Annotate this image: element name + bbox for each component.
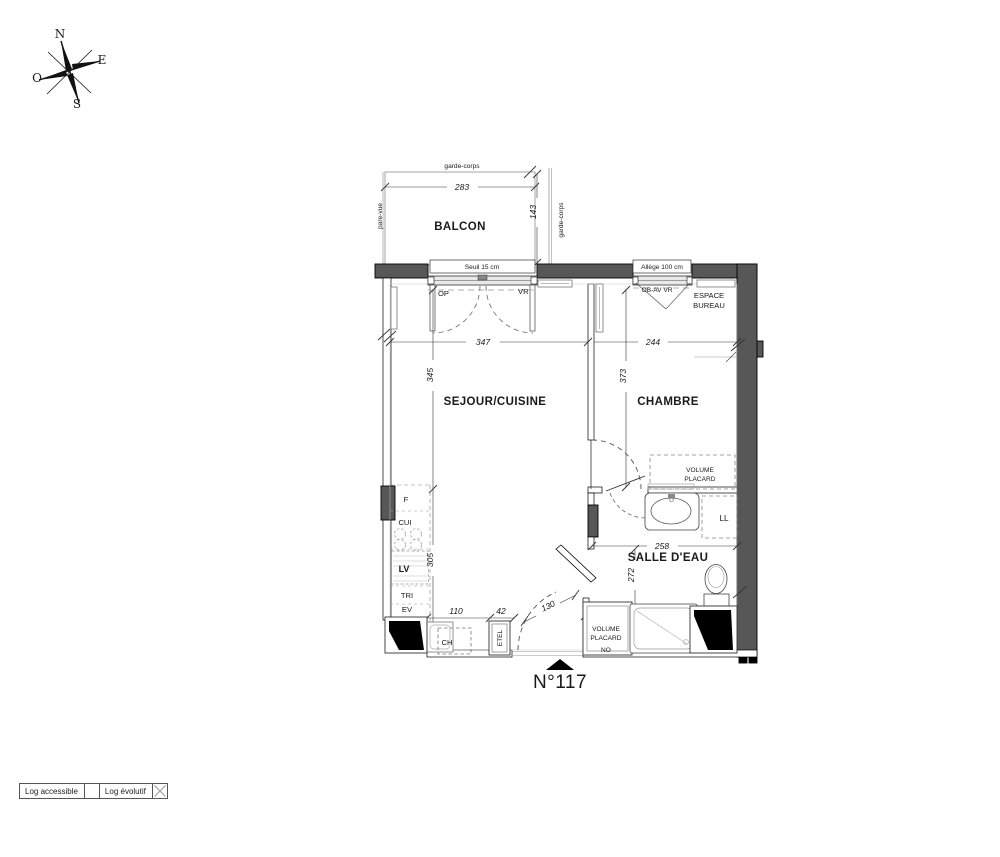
floor-plan-drawing: N E O S garde-corps pare-vue garde-corps… (0, 0, 1000, 857)
allege-label: Allège 100 cm (641, 264, 683, 271)
radiator-sejour-left (391, 287, 397, 329)
legend-log-evolutif-label: Log évolutif (100, 784, 152, 798)
dim-244: 244 (645, 337, 660, 347)
entrance-marker-icon (546, 659, 574, 670)
interior-outline (390, 284, 737, 650)
x-mark-icon (154, 785, 166, 797)
compass-rose: N E O S (32, 27, 106, 111)
etel-label: ETEL (497, 629, 504, 646)
pare-vue-label: pare-vue (377, 203, 384, 229)
sorting-label: TRI (401, 591, 413, 600)
sink-label: EV (402, 605, 413, 614)
entry-zone: CH ETEL (427, 592, 583, 656)
legend-log-evolutif: Log évolutif (100, 783, 168, 799)
apartment-number-label: N°117 (533, 672, 587, 693)
legend-log-evolutif-checkbox (152, 784, 167, 798)
dim-283: 283 (454, 182, 469, 192)
garde-corps-top-label: garde-corps (444, 163, 480, 170)
salle-eau-label: SALLE D'EAU (628, 552, 709, 564)
espace-bureau-label-2: BUREAU (693, 301, 725, 310)
espace-bureau-label-1: ESPACE (694, 291, 724, 300)
cooktop-label: CUI (398, 518, 411, 527)
compass-south-label: S (73, 97, 81, 111)
dim-347: 347 (476, 337, 490, 347)
placard-entree: VOLUME PLACARD NO (583, 602, 632, 655)
placard-chambre-label-1: VOLUME (686, 467, 714, 474)
compass-east-label: E (98, 53, 107, 67)
op-label: OP (438, 289, 449, 298)
corner-post-right (690, 606, 737, 653)
corner-post-left (385, 617, 427, 653)
legend-log-accessible: Log accessible (19, 783, 100, 799)
garde-corps-right-label: garde-corps (558, 202, 565, 238)
no-label: NO (601, 647, 611, 654)
window-chambre: Allège 100 cm OB-AV VR (633, 260, 692, 309)
dishwasher-icon (392, 551, 429, 584)
vr-label: VR (518, 287, 529, 296)
chambre-door (591, 440, 641, 489)
ob-av-vr-label: OB-AV VR (641, 287, 672, 294)
shower (630, 604, 697, 653)
cooktop-burners-icon (395, 529, 422, 551)
washing-machine-label: LL (719, 514, 729, 523)
dim-345: 345 (425, 368, 435, 382)
legend-log-accessible-checkbox (84, 784, 99, 798)
dim-42: 42 (496, 606, 506, 616)
compass-west-label: O (32, 71, 42, 85)
dim-110: 110 (449, 606, 463, 616)
compass-north-label: N (55, 27, 66, 41)
espace-bureau-zone: ESPACE BUREAU (693, 291, 736, 362)
dim-272: 272 (626, 568, 636, 583)
floor-plan-page: N E O S garde-corps pare-vue garde-corps… (0, 0, 1000, 857)
apartment-number: N°117 (533, 659, 587, 693)
chambre-label: CHAMBRE (637, 396, 699, 408)
legend-log-accessible-label: Log accessible (20, 784, 84, 798)
placard-entree-label-1: VOLUME (592, 626, 620, 633)
balcony: garde-corps pare-vue garde-corps BALCON … (377, 163, 565, 267)
placard-entree-label-2: PLACARD (590, 635, 621, 642)
toilet (704, 565, 729, 607)
seuil-label: Seuil 15 cm (465, 264, 500, 271)
washing-machine: LL (702, 496, 737, 538)
legend: Log accessible Log évolutif (19, 783, 168, 799)
dim-143: 143 (528, 205, 538, 219)
placard-chambre-label-2: PLACARD (684, 476, 715, 483)
sejour-cuisine-label: SEJOUR/CUISINE (444, 396, 547, 408)
balcony-room-label: BALCON (434, 221, 486, 233)
window-balcony: Seuil 15 cm OP VR (428, 260, 537, 333)
dishwasher-label: LV (399, 564, 410, 574)
dim-373: 373 (618, 369, 628, 383)
dim-258: 258 (654, 541, 669, 551)
radiator-bureau (697, 280, 735, 287)
fridge-label: F (404, 495, 409, 504)
water-heater-label: CH (442, 638, 453, 647)
